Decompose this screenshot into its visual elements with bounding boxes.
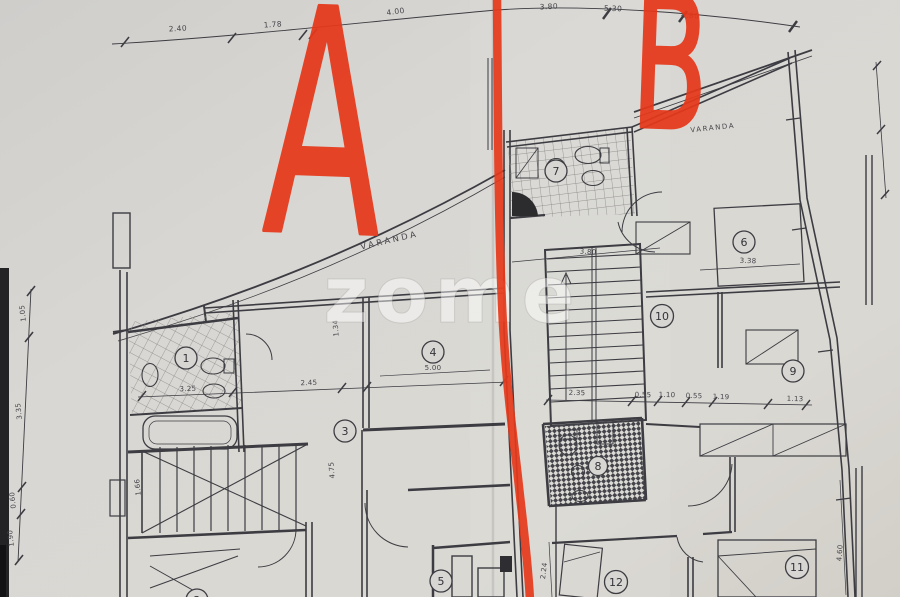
- room-number: 4: [430, 346, 437, 359]
- dimension-label: 2.45: [300, 379, 317, 388]
- room-badge-3: 3: [334, 420, 356, 442]
- room-number: 6: [741, 236, 748, 249]
- dimension-label: 4.75: [327, 461, 336, 478]
- room-badge-10: 10: [651, 305, 674, 328]
- room-number: 7: [553, 165, 560, 178]
- dimension-label: 0.55: [635, 391, 652, 399]
- dimension-label: 2.40: [168, 24, 187, 34]
- room-badge-1: 1: [175, 347, 197, 369]
- dimension-label: 3.80: [580, 248, 597, 257]
- dimension-label: 5.00: [425, 364, 442, 372]
- room-badge-4: 4: [422, 341, 444, 363]
- dimension-label: 5.30: [604, 4, 623, 14]
- unit-b-marker-letter: B: [628, 0, 712, 172]
- room-badge-5: 5: [430, 570, 452, 592]
- room-badge-8: 8: [589, 457, 608, 476]
- dimension-label: 1.10: [659, 391, 676, 399]
- dimension-label: 3.25: [179, 385, 196, 394]
- room-badge-11: 11: [786, 556, 809, 579]
- floorplan-photo: 2.40 1.78 4.00 3.80 5.30 4.80 1.05 3.35 …: [0, 0, 900, 597]
- room-number: 1: [183, 352, 190, 365]
- room-badge-9: 9: [782, 360, 804, 382]
- room-number: 3: [342, 425, 349, 438]
- room-badge-7: 7: [545, 160, 567, 182]
- room-number: 12: [609, 576, 623, 589]
- dimension-label: 3.80: [539, 2, 558, 12]
- dimension-label: 1.13: [787, 395, 804, 404]
- dimension-label: 0.55: [686, 392, 703, 401]
- dimension-label: 4.60: [835, 544, 844, 561]
- dimension-label: 3.38: [740, 257, 757, 266]
- room-number: 5: [438, 575, 445, 588]
- room-badge-12: 12: [605, 571, 628, 594]
- room-badge-6: 6: [733, 231, 755, 253]
- room-number: 8: [595, 460, 602, 473]
- dimension-label: 2.35: [569, 389, 586, 397]
- room-number: 11: [790, 561, 804, 574]
- unit-a-marker-letter: A: [259, 0, 388, 308]
- dimension-label: 1.19: [713, 393, 730, 402]
- room-number: 9: [790, 365, 797, 378]
- dimension-label: 1.66: [133, 478, 142, 496]
- room-number: 10: [655, 310, 669, 323]
